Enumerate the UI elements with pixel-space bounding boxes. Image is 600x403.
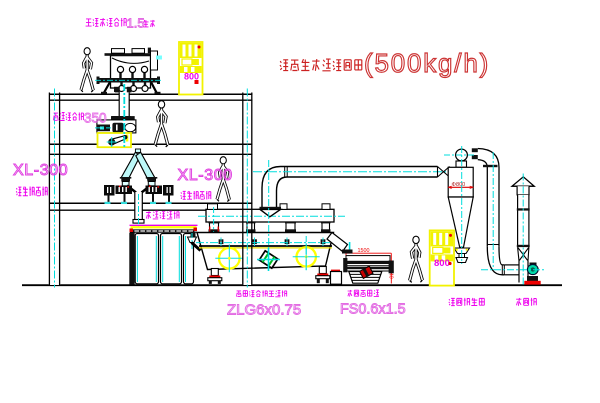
svg-text:1500: 1500 xyxy=(358,248,370,254)
svg-text:FS0.6x1.5: FS0.6x1.5 xyxy=(340,302,406,318)
svg-text:1.5: 1.5 xyxy=(127,16,145,31)
svg-text:Φ800: Φ800 xyxy=(452,182,466,188)
svg-text:800: 800 xyxy=(434,258,450,269)
svg-text:ZLG6x0.75: ZLG6x0.75 xyxy=(227,302,301,319)
svg-text:(500kg/h): (500kg/h) xyxy=(364,48,490,78)
svg-text:XL-300: XL-300 xyxy=(13,162,68,179)
svg-text:350: 350 xyxy=(84,111,107,126)
svg-text:XL-300: XL-300 xyxy=(178,167,233,184)
